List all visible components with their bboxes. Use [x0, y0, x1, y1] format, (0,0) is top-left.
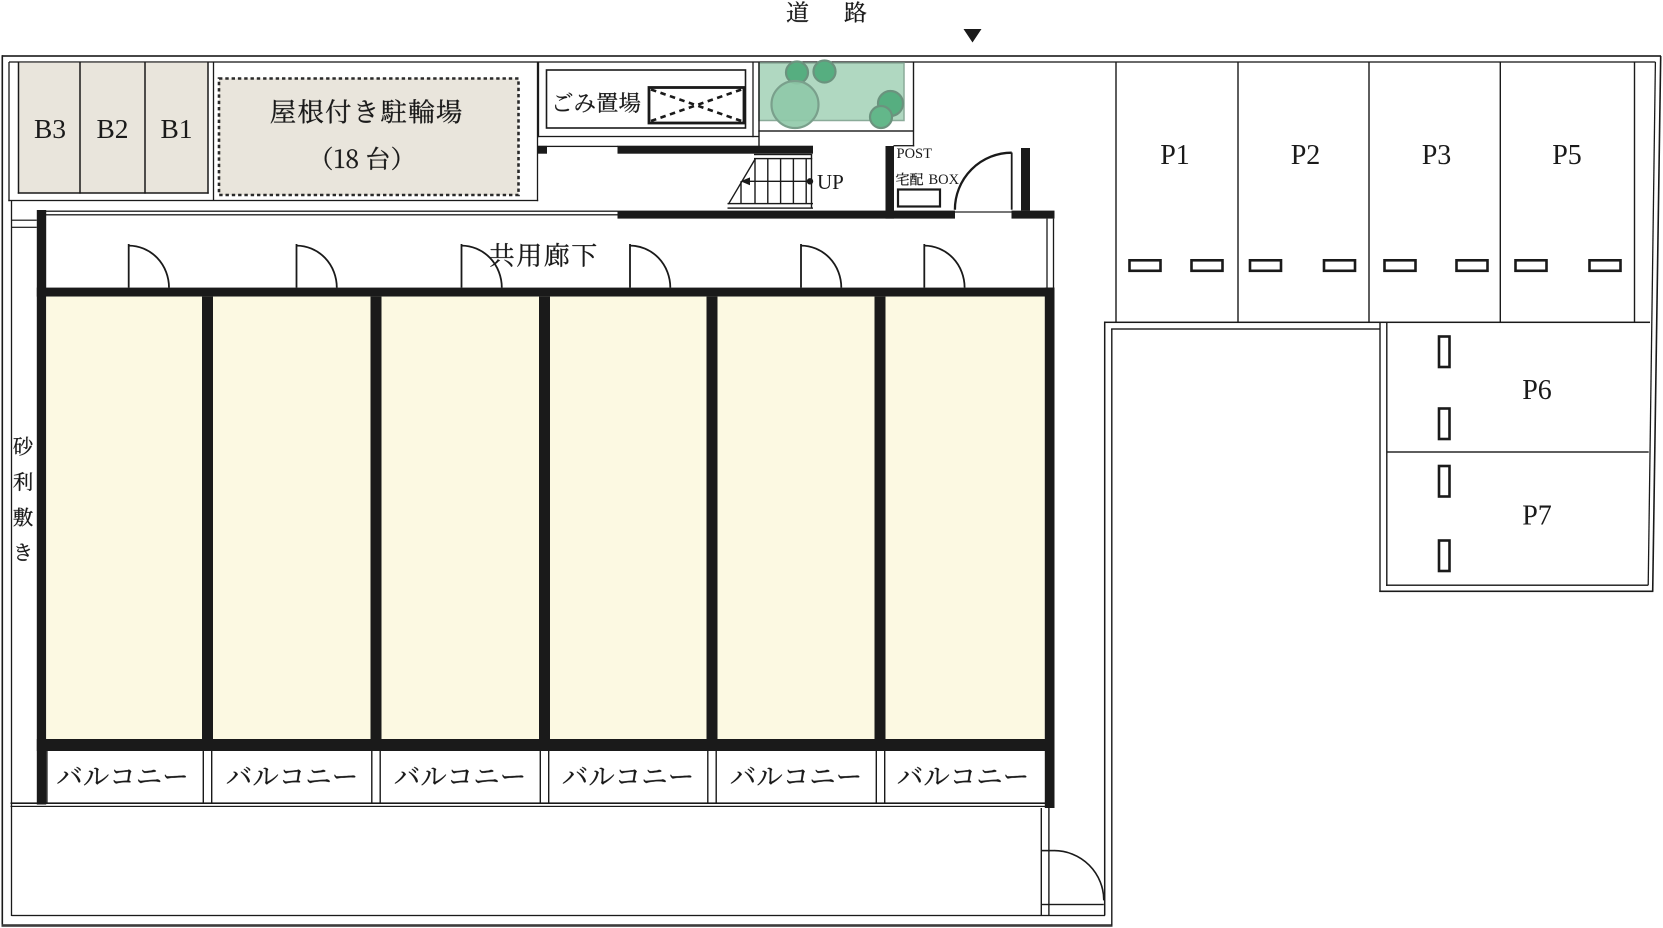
svg-text:POST: POST	[897, 146, 933, 162]
svg-text:P2: P2	[1291, 140, 1321, 171]
svg-text:B2: B2	[96, 113, 128, 144]
svg-text:P1: P1	[1160, 140, 1190, 171]
svg-text:P6: P6	[1522, 375, 1552, 406]
svg-text:P3: P3	[1422, 140, 1452, 171]
svg-text:BOX: BOX	[929, 172, 960, 188]
svg-text:P5: P5	[1552, 140, 1582, 171]
svg-text:B3: B3	[34, 113, 66, 144]
svg-text:UP: UP	[817, 170, 844, 194]
svg-text:B1: B1	[160, 113, 192, 144]
svg-text:P7: P7	[1522, 501, 1552, 532]
